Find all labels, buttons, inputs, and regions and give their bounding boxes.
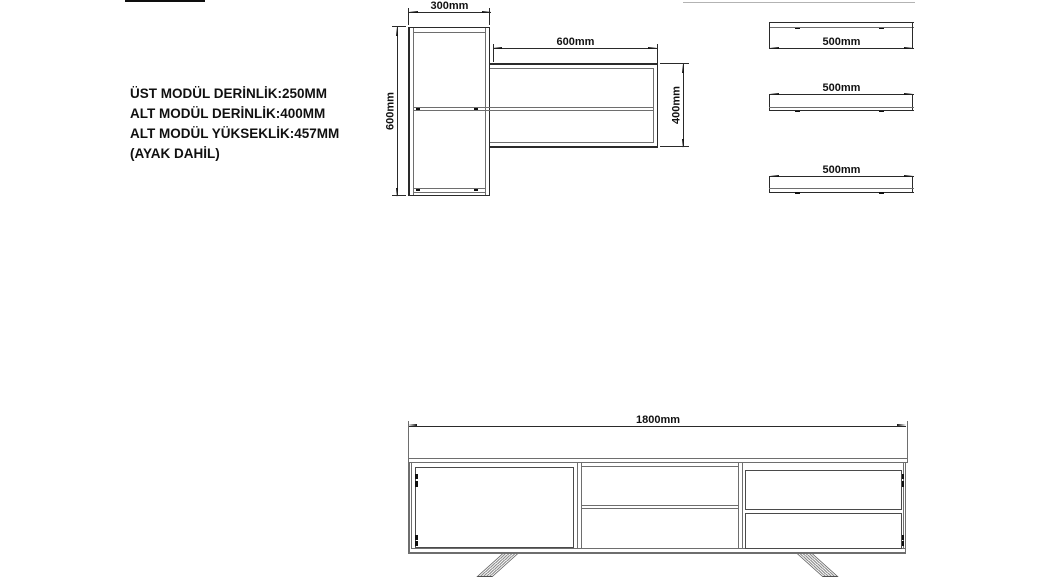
wall-shelf-3-board-inner (769, 188, 914, 189)
dim-label-shelf-unit-width: 600mm (557, 37, 595, 48)
technical-drawing: ÜST MODÜL DERİNLİK:250MM ALT MODÜL DERİN… (0, 0, 1040, 577)
hinge-mark (902, 474, 905, 479)
dim-300-line (409, 12, 491, 13)
dim-label-wall-shelf-1: 500mm (823, 37, 861, 48)
tv-stand-left-wall-outer (408, 462, 409, 554)
dim-600v-line (397, 27, 398, 196)
dim-400v-line (683, 64, 684, 148)
dowel-mark (474, 108, 478, 110)
shelf-unit-top-board-inner (490, 68, 654, 69)
tv-stand-right-leg (796, 553, 838, 577)
dim-500a-arrow-left (770, 47, 779, 49)
wall-shelf-3-right-side (912, 176, 913, 193)
middle-shelf-top-line (413, 107, 654, 108)
wall-shelf-1-board-inner (769, 27, 914, 28)
dim-600h-ext-right (657, 44, 658, 63)
dowel-mark (879, 192, 884, 194)
compartment-ceiling (581, 466, 739, 467)
cabinet-left-wall-outer (408, 27, 409, 197)
tv-stand-left-wall-inner (411, 462, 412, 549)
dim-500b-line (769, 94, 914, 95)
dim-600v-ext-bottom (392, 195, 406, 196)
dim-label-cabinet-height: 600mm (386, 92, 397, 130)
shelf-unit-right-wall-outer (657, 63, 658, 147)
dim-300-arrow-right (482, 11, 491, 13)
divider-1-left (577, 462, 578, 549)
tv-stand-drawer-top (745, 470, 902, 511)
tv-stand-drawer-bottom (745, 513, 902, 549)
hinge-mark (415, 474, 418, 479)
dim-600h-ext-left (493, 44, 494, 62)
top-border-fragment-right (683, 2, 915, 4)
tv-stand-top-panel-top (408, 458, 909, 459)
hinge-mark (415, 481, 418, 487)
wall-shelf-2-board-inner (769, 107, 914, 108)
dim-600v-arrow-top (396, 27, 398, 36)
dim-500a-arrow-right (904, 47, 913, 49)
tv-stand-left-leg (477, 553, 519, 577)
compartment-shelf-bottom (581, 508, 739, 509)
shelf-unit-right-wall-inner (653, 68, 654, 142)
wall-shelf-2-bottom (769, 110, 914, 111)
spec-notes: ÜST MODÜL DERİNLİK:250MM ALT MODÜL DERİN… (130, 84, 339, 164)
cabinet-bottom-edge (408, 195, 490, 196)
dim-1800-arrow-left (408, 424, 417, 426)
shelf-unit-top-edge (490, 63, 659, 64)
dim-600v-ext-top (392, 26, 406, 27)
divider-2-left (738, 462, 739, 549)
dim-500c-arrow-left (770, 175, 779, 177)
dim-label-tv-stand-width: 1800mm (636, 415, 680, 426)
dowel-mark (879, 111, 884, 113)
shelf-unit-bottom-board-inner (490, 142, 654, 143)
dowel-mark (795, 28, 800, 30)
tv-stand-bottom-outer (408, 552, 906, 553)
dowel-mark (879, 28, 884, 30)
dim-label-shelf-unit-height: 400mm (672, 86, 683, 124)
dim-label-wall-shelf-2: 500mm (823, 83, 861, 94)
hinge-mark (902, 481, 905, 487)
wall-shelf-3-bottom (769, 192, 914, 193)
cabinet-top-board-inner (413, 32, 486, 33)
hinge-mark (415, 535, 418, 540)
spec-note-line: (AYAK DAHİL) (130, 144, 339, 164)
dowel-mark (795, 192, 800, 194)
dim-1800-ext-left (408, 421, 409, 462)
spec-note-line: ÜST MODÜL DERİNLİK:250MM (130, 84, 339, 104)
wall-shelf-1-right-side (912, 22, 913, 50)
dim-400v-arrow-top (682, 64, 684, 73)
shelf-unit-bottom-edge (490, 146, 659, 147)
dim-500c-line (769, 176, 914, 177)
wall-shelf-1-top (769, 22, 914, 23)
dim-1800-ext-right (907, 421, 908, 462)
tv-stand-door (415, 467, 574, 548)
dim-label-cabinet-width: 300mm (431, 1, 469, 12)
tv-stand-right-wall-outer (905, 462, 906, 554)
dim-600h-arrow-left (493, 47, 502, 49)
spec-note-line: ALT MODÜL DERİNLİK:400MM (130, 104, 339, 124)
divider-2-right (742, 462, 743, 549)
dowel-mark (474, 189, 478, 191)
middle-shelf-bottom-line (413, 110, 654, 111)
hinge-mark (902, 541, 905, 547)
dim-500b-arrow-left (770, 93, 779, 95)
compartment-shelf-top (581, 505, 739, 506)
dim-600h-line (493, 48, 657, 49)
dowel-mark (795, 111, 800, 113)
cabinet-bottom-board-bottom (413, 192, 486, 193)
wall-shelf-2-right-side (912, 94, 913, 111)
dim-400v-arrow-bottom (682, 139, 684, 148)
wall-shelf-1-left-side (769, 22, 770, 50)
wall-shelf-3-left-side (769, 176, 770, 193)
dim-1800-line (408, 426, 906, 427)
hinge-mark (902, 535, 905, 540)
dim-label-wall-shelf-3: 500mm (823, 165, 861, 176)
dim-500a-line (769, 48, 914, 49)
cabinet-top-edge (408, 27, 490, 28)
dim-600v-arrow-bottom (396, 188, 398, 197)
top-border-fragment-left (125, 0, 205, 2)
wall-shelf-2-left-side (769, 94, 770, 111)
hinge-mark (415, 541, 418, 547)
dowel-mark (416, 108, 420, 110)
dowel-mark (416, 189, 420, 191)
dim-300-arrow-left (409, 11, 418, 13)
dim-1800-arrow-right (897, 424, 906, 426)
spec-note-line: ALT MODÜL YÜKSEKLİK:457MM (130, 124, 339, 144)
tv-stand-top-panel-bottom (408, 462, 909, 463)
